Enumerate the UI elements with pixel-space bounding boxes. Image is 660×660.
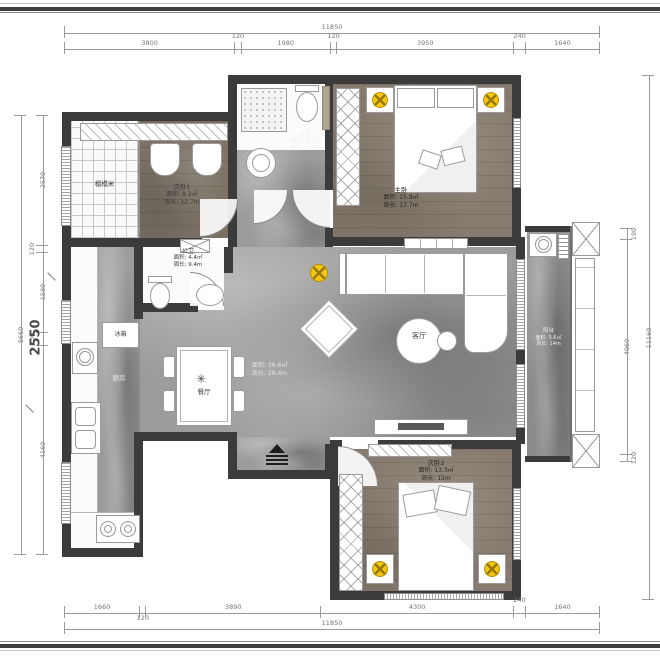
- low-cabinet: [368, 444, 452, 457]
- room-label-guest-bath: 公卫 面积: 4.4㎡ 周长: 9.4m: [158, 248, 218, 269]
- floor-plan-canvas: ✳ 榻榻米 次卧1 面积: 9.2㎡ 周长: 12.7m 主卫: [0, 0, 660, 660]
- pillow: [437, 88, 474, 108]
- room-label-master: 主卧 面积: 15.8㎡ 周长: 17.7m: [356, 186, 446, 210]
- washbasin-inner: [252, 154, 270, 172]
- balcony-wall-east: [570, 226, 572, 462]
- lounge-chair: [150, 143, 180, 176]
- room-label-master-bath: 主卫 面积: 4.2㎡ 周长: 8.3m: [282, 132, 328, 153]
- sink-basin: [75, 407, 96, 426]
- tv-screen: [398, 423, 444, 430]
- dining-table: [176, 346, 232, 426]
- plant-icon: ✳: [196, 372, 206, 386]
- cabinet-row: [80, 123, 228, 141]
- dim-tick: [25, 404, 33, 412]
- living-area-label: 面积: 36.6㎡ 周长: 28.4m: [252, 362, 316, 378]
- dim-chain-bottom-total: 11850: [64, 622, 600, 634]
- entry-marker-icon: [266, 444, 288, 466]
- wall: [62, 112, 233, 121]
- pillow: [397, 88, 435, 108]
- wall: [325, 75, 521, 84]
- washing-machine-drum: [535, 236, 552, 253]
- coffee-table-round: [396, 318, 442, 364]
- washbasin: [196, 284, 224, 306]
- frame-line-bottom: [0, 644, 660, 648]
- sofa-armrest: [339, 253, 346, 295]
- wall: [224, 247, 233, 273]
- toilet-bowl: [150, 283, 170, 309]
- dining-chair: [163, 356, 175, 378]
- dim-annotation-inner: 2550: [29, 308, 44, 368]
- wardrobe: [339, 474, 363, 591]
- wall: [516, 428, 525, 444]
- dim-chain-right-segments: 190 4060 120: [620, 228, 632, 462]
- washing-machine-drum: [76, 348, 94, 366]
- ceiling-light-icon: [310, 264, 328, 282]
- dining-chair: [233, 390, 245, 412]
- wall: [62, 548, 142, 557]
- balcony-wall-bottom: [525, 456, 572, 462]
- stove-burner: [120, 521, 136, 537]
- dining-chair: [233, 356, 245, 378]
- ceiling-light-icon: [372, 92, 388, 108]
- room-label-bedroom1: 次卧1 面积: 9.2㎡ 周长: 12.7m: [142, 183, 222, 207]
- window: [384, 593, 504, 600]
- wall: [228, 75, 333, 84]
- sofa-corner: [464, 253, 508, 353]
- bath-shelf: [322, 86, 330, 130]
- equipment-platform: [572, 222, 600, 256]
- window: [513, 118, 521, 188]
- frame-line-top-thin: [0, 3, 660, 4]
- sofa-cushion-line: [385, 255, 386, 293]
- label-fridge: 冰箱: [102, 331, 139, 339]
- frame-line-top-gray: [0, 12, 660, 13]
- equipment-platform: [572, 434, 600, 468]
- ceiling-light-icon: [484, 561, 500, 577]
- room-label-living: 客厅: [396, 332, 442, 340]
- sideboard: [404, 238, 468, 249]
- balcony-wall-top: [525, 226, 572, 232]
- sofa-cushion-line: [424, 255, 425, 293]
- stove-burner: [100, 521, 116, 537]
- toilet-bowl: [296, 92, 318, 122]
- wall: [228, 112, 237, 247]
- dim-chain-top-segments: 3800 120 1980 120 3950 240 1640: [64, 42, 600, 54]
- frame-line-bottom-thin: [0, 650, 660, 651]
- drying-rack: [558, 233, 569, 259]
- toilet-tank: [148, 276, 172, 283]
- entry-door-leaf: [325, 444, 331, 472]
- wall: [516, 237, 525, 259]
- window: [61, 146, 71, 226]
- room-label-balcony: 阳台 面积: 5.6㎡ 周长: 14m: [527, 328, 570, 348]
- dining-chair: [163, 390, 175, 412]
- dim-chain-right-total: 11160: [642, 75, 654, 600]
- balcony-slider-door: [516, 259, 525, 350]
- kitchen-counter-left: [71, 247, 98, 542]
- room-label-kitchen: 厨房: [98, 374, 140, 382]
- wall: [516, 350, 525, 364]
- window: [61, 300, 71, 344]
- sofa-main: [346, 253, 464, 295]
- window: [61, 462, 71, 524]
- shower-area: [241, 88, 287, 132]
- lounge-chair: [192, 143, 222, 176]
- wall: [140, 432, 237, 441]
- dim-tick: [47, 272, 55, 280]
- sofa-cushion-line: [466, 295, 506, 296]
- toilet: [295, 85, 319, 92]
- dim-chain-left-total: 8660: [14, 115, 26, 555]
- room-label-bedroom2: 次卧2 面积: 13.3㎡ 周长: 15m: [394, 459, 478, 483]
- window: [513, 488, 521, 560]
- frame-line-bottom-gray: [0, 641, 660, 642]
- sink-basin: [75, 430, 96, 449]
- ceiling-light-icon: [372, 561, 388, 577]
- wall: [233, 470, 333, 479]
- utility-column: [575, 258, 595, 432]
- room-label-dining: 餐厅: [186, 388, 222, 396]
- frame-line-top: [0, 7, 660, 11]
- window: [516, 364, 525, 428]
- room-label-tatami: 榻榻米: [71, 180, 138, 188]
- dim-chain-bottom-segments: 1660 120 3890 4300 240 1640: [64, 606, 600, 618]
- ceiling-light-icon: [483, 92, 499, 108]
